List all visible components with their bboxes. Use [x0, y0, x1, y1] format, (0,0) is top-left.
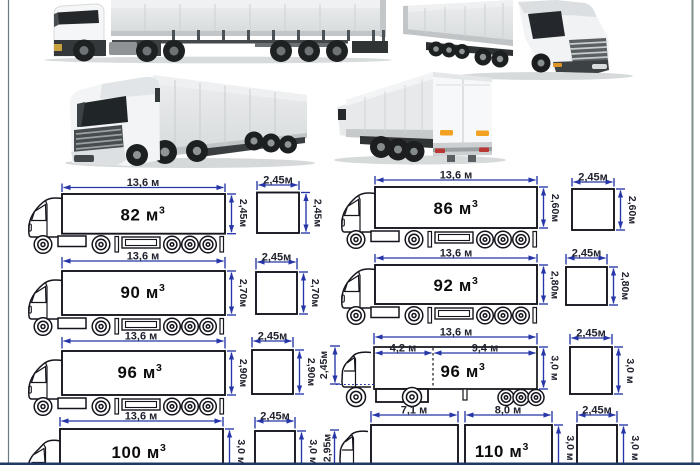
svg-text:7,1 м: 7,1 м	[401, 405, 428, 417]
svg-text:2,45м: 2,45м	[572, 248, 602, 260]
svg-text:2,45м: 2,45м	[258, 331, 288, 343]
svg-text:3,0 м: 3,0 м	[629, 435, 641, 461]
svg-text:13,6 м: 13,6 м	[125, 331, 158, 343]
svg-text:13,6 м: 13,6 м	[125, 411, 158, 423]
svg-text:8,0 м: 8,0 м	[495, 405, 522, 417]
svg-text:2,45м: 2,45м	[263, 175, 293, 187]
svg-text:9,4 м: 9,4 м	[472, 343, 499, 355]
svg-text:96 м3: 96 м3	[117, 362, 162, 382]
svg-text:2,45м: 2,45м	[312, 199, 324, 227]
svg-text:2,45м: 2,45м	[318, 351, 330, 379]
svg-text:2,60м: 2,60м	[626, 196, 638, 224]
svg-text:110 м3: 110 м3	[475, 441, 529, 461]
svg-text:13,6 м: 13,6 м	[440, 170, 473, 182]
svg-text:2,70м: 2,70м	[309, 279, 321, 307]
svg-text:13,6 м: 13,6 м	[440, 327, 473, 339]
svg-text:2,60м: 2,60м	[549, 194, 561, 222]
svg-text:2,45м: 2,45м	[582, 405, 612, 417]
svg-text:2,90м: 2,90м	[305, 358, 317, 386]
svg-text:100 м3: 100 м3	[111, 442, 166, 462]
svg-text:2,45м: 2,45м	[262, 252, 292, 264]
svg-text:2,80м: 2,80м	[619, 272, 631, 300]
svg-text:2,80м: 2,80м	[549, 271, 561, 299]
svg-text:2,45м: 2,45м	[260, 411, 290, 423]
svg-text:4,2 м: 4,2 м	[390, 343, 417, 355]
svg-text:82 м3: 82 м3	[120, 205, 165, 225]
svg-text:2,90м: 2,90м	[237, 359, 249, 387]
svg-text:90 м3: 90 м3	[120, 282, 165, 302]
svg-text:2,95м: 2,95м	[322, 434, 334, 462]
svg-text:13,6 м: 13,6 м	[127, 251, 160, 263]
svg-text:2,45м: 2,45м	[578, 172, 608, 184]
svg-text:92 м3: 92 м3	[433, 275, 478, 295]
svg-text:2,70м: 2,70м	[237, 279, 249, 307]
svg-text:96 м3: 96 м3	[440, 361, 485, 381]
svg-text:3,0 м: 3,0 м	[235, 439, 247, 465]
svg-text:2,45м: 2,45м	[576, 328, 606, 340]
svg-text:3,0 м: 3,0 м	[307, 439, 319, 465]
svg-text:3,0 м: 3,0 м	[549, 355, 561, 381]
svg-text:13,6 м: 13,6 м	[440, 248, 473, 260]
svg-text:3,0 м: 3,0 м	[564, 435, 576, 461]
svg-text:86 м3: 86 м3	[433, 198, 478, 218]
svg-text:3,0 м: 3,0 м	[624, 358, 636, 384]
svg-text:13,6 м: 13,6 м	[127, 177, 160, 189]
svg-text:2,45м: 2,45м	[237, 199, 249, 227]
